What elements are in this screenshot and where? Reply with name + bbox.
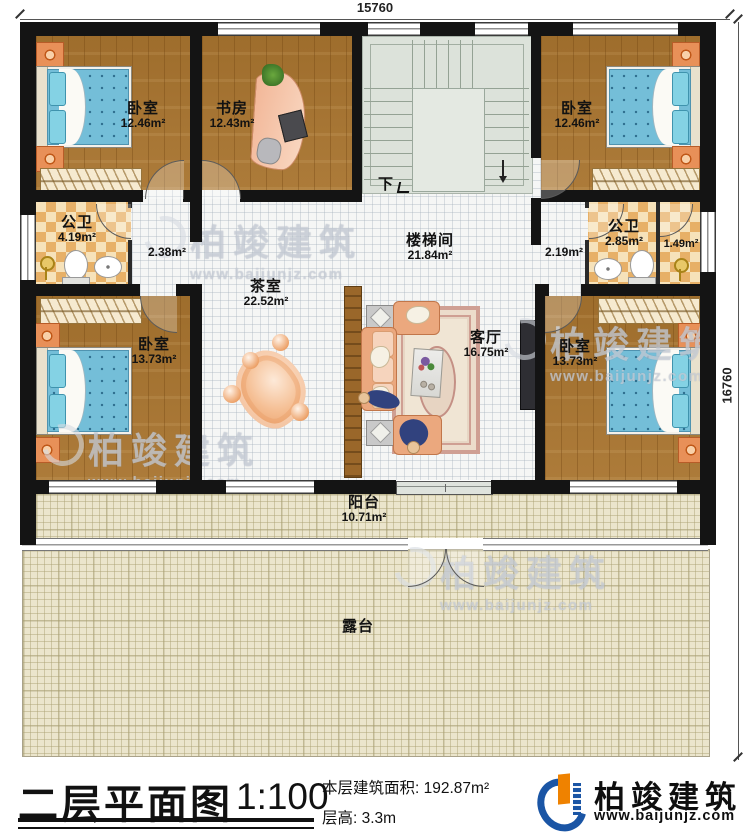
tea-stool	[272, 334, 289, 351]
room-name: 公卫	[37, 214, 117, 231]
wall	[240, 190, 352, 202]
room-label-hall-left: 2.38m²	[132, 246, 202, 260]
person-head	[358, 392, 370, 404]
stair-direction-arrow	[502, 160, 504, 176]
bed-pillow	[49, 394, 66, 428]
wall	[535, 284, 545, 480]
wall	[352, 36, 362, 202]
floor-area-info: 本层建筑面积: 192.87m²	[322, 776, 489, 798]
room-name: 书房	[184, 100, 280, 117]
tea-stool	[223, 385, 241, 403]
stair-steps-left	[364, 88, 412, 190]
wardrobe-br	[598, 298, 700, 324]
room-label-bedroom-bl: 卧室 13.73m²	[106, 336, 202, 367]
room-name: 客厅	[438, 329, 534, 346]
room-name: 楼梯间	[382, 232, 478, 249]
room-label-stairwell: 楼梯间 21.84m²	[382, 232, 478, 263]
room-area: 21.84m²	[382, 249, 478, 263]
teacup	[420, 381, 427, 388]
wall	[677, 480, 716, 494]
room-label-bedroom-tr: 卧室 12.46m²	[529, 100, 625, 131]
tea-stool	[291, 403, 309, 421]
room-name: 公卫	[584, 218, 664, 235]
dimension-tick	[725, 9, 735, 19]
wall	[541, 190, 700, 202]
title-underline-2	[18, 827, 314, 829]
stair-steps-top	[412, 40, 483, 88]
floor-drain	[40, 256, 55, 271]
wall	[20, 280, 36, 545]
room-area: 12.46m²	[95, 117, 191, 131]
bed-pillow	[672, 354, 689, 388]
stair-landing	[412, 88, 485, 192]
room-name: 露台	[322, 618, 394, 635]
room-name: 卧室	[529, 100, 625, 117]
window	[218, 22, 320, 36]
bed-pillow	[672, 394, 689, 428]
room-name: 阳台	[316, 494, 412, 511]
room-area: 4.19m²	[37, 231, 117, 245]
wall	[531, 36, 541, 158]
floor-area-label: 本层建筑面积:	[322, 780, 419, 797]
dimension-height: 16760	[720, 351, 735, 421]
floor-drain-handle	[45, 267, 47, 280]
bed-pillow	[49, 354, 66, 388]
room-area: 12.46m²	[529, 117, 625, 131]
wood-partition	[344, 286, 362, 478]
logo-building-orange	[558, 773, 570, 804]
room-label-study: 书房 12.43m²	[184, 100, 280, 131]
room-name: 卧室	[95, 100, 191, 117]
terrace-railing-right	[483, 538, 708, 551]
stair-down-label: 下	[372, 176, 400, 193]
stair-direction-arrowhead	[499, 176, 507, 183]
room-area: 10.71m²	[316, 511, 412, 525]
side-table	[366, 420, 395, 446]
nightstand	[36, 42, 64, 68]
sofa-pillow	[406, 306, 430, 324]
wall	[20, 22, 36, 215]
armchair	[393, 301, 440, 335]
wall	[20, 480, 49, 494]
room-label-bath-left: 公卫 4.19m²	[37, 214, 117, 245]
wall	[36, 190, 143, 202]
dimension-line-right	[738, 22, 739, 760]
flower-decor	[418, 364, 424, 370]
floor-height-value: 3.3m	[362, 810, 396, 827]
window	[49, 480, 156, 494]
window	[20, 215, 36, 280]
wall	[491, 480, 570, 494]
plant	[262, 64, 284, 86]
floor-height-label: 层高:	[322, 810, 357, 827]
wall	[581, 284, 700, 296]
nightstand	[34, 437, 60, 463]
stair-steps-right	[483, 88, 529, 190]
window	[570, 480, 677, 494]
window	[475, 22, 528, 36]
person-head	[407, 441, 420, 454]
wall	[190, 284, 202, 480]
room-area: 13.73m²	[106, 353, 202, 367]
logo-url-text: www.baijunjz.com	[594, 808, 735, 824]
wall	[20, 22, 218, 36]
sink	[594, 258, 622, 280]
bed-pillow	[672, 72, 689, 106]
room-label-tea-room: 茶室 22.52m²	[218, 278, 314, 309]
window	[226, 480, 314, 494]
toilet	[630, 250, 654, 280]
floor-height-info: 层高: 3.3m	[322, 806, 396, 828]
sink	[94, 256, 122, 278]
floor-plan: 柏竣建筑 www.baijunjz.com 柏竣建筑 www.baijunjz.…	[0, 0, 750, 839]
wall	[700, 22, 716, 212]
bed-pillow	[49, 110, 66, 144]
wall	[528, 22, 573, 36]
room-label-bedroom-br: 卧室 13.73m²	[527, 338, 623, 369]
room-label-balcony: 阳台 10.71m²	[316, 494, 412, 525]
floor-area-value: 192.87m²	[424, 780, 489, 797]
wall	[700, 272, 716, 545]
dimension-line-top	[20, 19, 730, 20]
room-label-terrace: 露台	[322, 618, 394, 635]
down-arrow-mark	[397, 182, 411, 193]
window	[573, 22, 678, 36]
sliding-door	[396, 481, 493, 495]
wall	[314, 480, 396, 494]
room-area: 13.73m²	[527, 355, 623, 369]
floor-drain-handle	[679, 269, 681, 281]
bed-pillow	[672, 110, 689, 144]
terrace-railing-left	[22, 538, 408, 551]
tea-stool	[242, 352, 259, 369]
room-area: 16.75m²	[438, 346, 534, 360]
room-label-living-room: 客厅 16.75m²	[438, 329, 534, 360]
room-name: 茶室	[218, 278, 314, 295]
bed-pillow	[49, 72, 66, 106]
terrace-floor	[22, 549, 710, 757]
dimension-tick	[15, 9, 25, 19]
wardrobe-bl	[40, 298, 142, 324]
nightstand	[672, 42, 700, 68]
nightstand	[34, 323, 60, 349]
room-label-shower-right: 1.49m²	[652, 238, 710, 251]
teacup	[428, 383, 435, 390]
room-name: 卧室	[527, 338, 623, 355]
logo-building-blue	[570, 780, 584, 818]
room-area: 2.38m²	[132, 246, 202, 260]
flower-decor	[427, 363, 434, 370]
window	[368, 22, 420, 36]
down-text: 下	[372, 176, 400, 193]
wall	[156, 480, 226, 494]
room-area: 1.49m²	[652, 238, 710, 251]
wall	[320, 22, 368, 36]
toilet	[64, 250, 88, 280]
floor-drain	[674, 258, 689, 273]
room-name: 卧室	[106, 336, 202, 353]
title-underline	[18, 818, 314, 822]
room-area: 12.43m²	[184, 117, 280, 131]
dimension-width: 15760	[340, 0, 410, 15]
wall	[36, 284, 140, 296]
wall	[420, 22, 475, 36]
drawing-scale: 1:100	[236, 776, 329, 818]
room-area: 22.52m²	[218, 295, 314, 309]
wall	[531, 198, 541, 245]
room-label-bedroom-tl: 卧室 12.46m²	[95, 100, 191, 131]
wall	[190, 36, 202, 242]
wall	[183, 190, 202, 202]
